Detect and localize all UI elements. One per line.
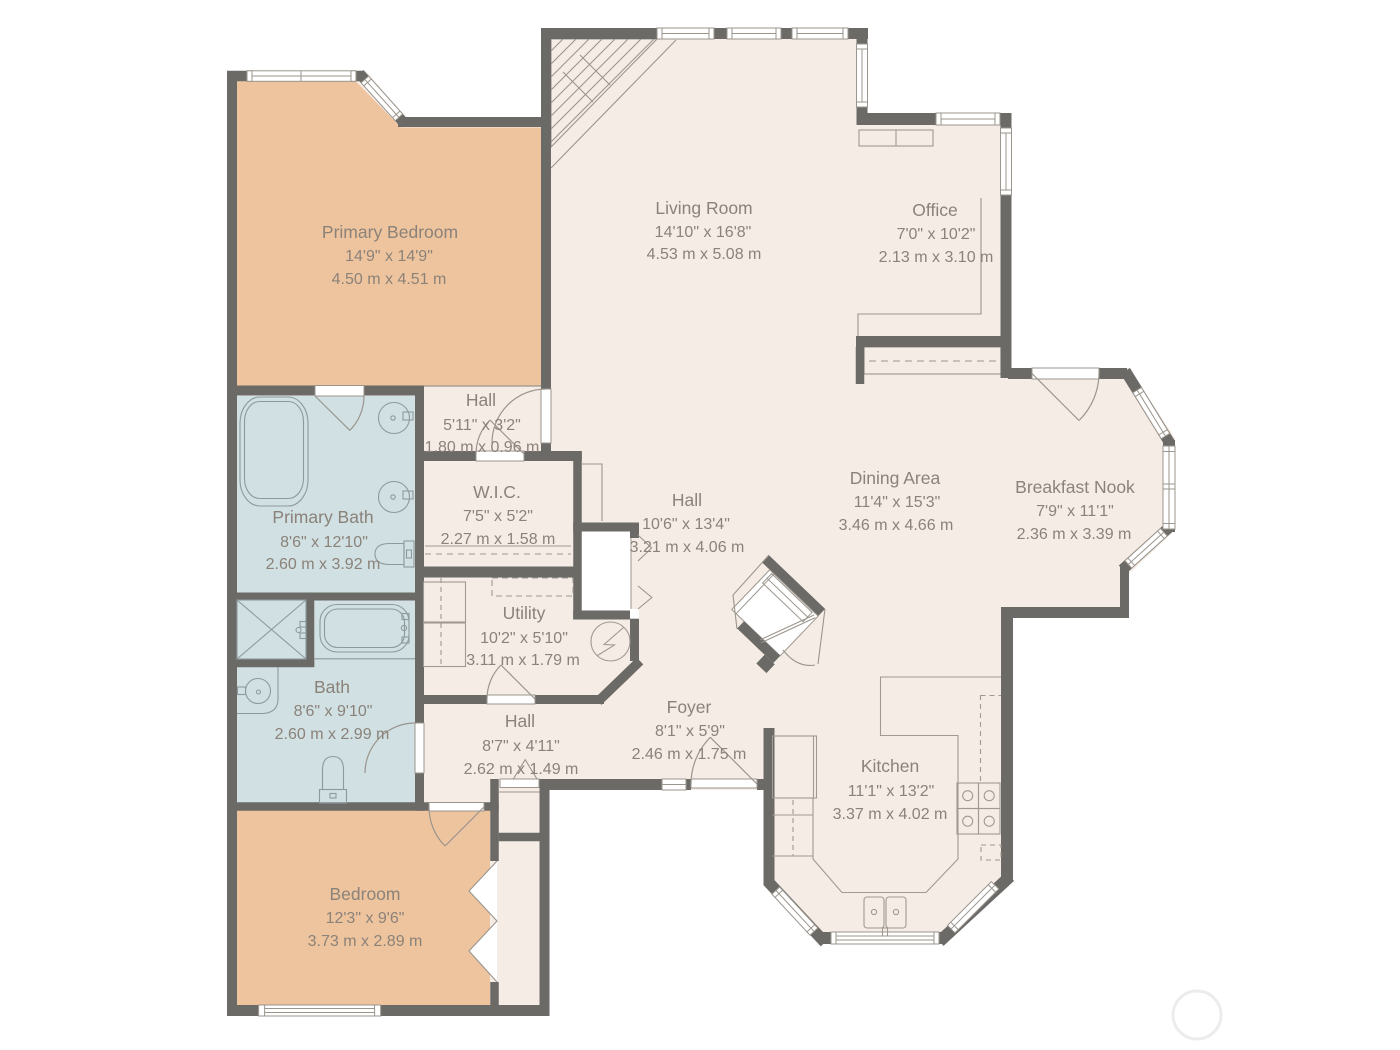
svg-text:2.36 m x 3.39 m: 2.36 m x 3.39 m — [1017, 526, 1132, 543]
svg-text:Bath: Bath — [314, 677, 350, 697]
svg-text:8'6" x 12'10": 8'6" x 12'10" — [280, 534, 368, 551]
svg-text:10'2" x 5'10": 10'2" x 5'10" — [480, 630, 568, 647]
svg-text:Hall: Hall — [505, 711, 535, 731]
svg-text:11'1" x 13'2": 11'1" x 13'2" — [848, 783, 935, 800]
svg-text:2.62 m x 1.49 m: 2.62 m x 1.49 m — [464, 761, 579, 778]
svg-text:8'7" x 4'11": 8'7" x 4'11" — [482, 738, 560, 755]
svg-text:2.13 m x 3.10 m: 2.13 m x 3.10 m — [879, 249, 994, 266]
svg-text:2.60 m x 3.92 m: 2.60 m x 3.92 m — [266, 556, 381, 573]
svg-text:Primary Bedroom: Primary Bedroom — [322, 222, 458, 242]
svg-text:2.60 m x 2.99 m: 2.60 m x 2.99 m — [275, 726, 390, 743]
svg-text:3.46 m x 4.66 m: 3.46 m x 4.66 m — [839, 517, 954, 534]
svg-text:3.37 m x 4.02 m: 3.37 m x 4.02 m — [833, 806, 948, 823]
svg-text:W.I.C.: W.I.C. — [473, 482, 521, 502]
svg-text:Primary Bath: Primary Bath — [272, 507, 373, 527]
svg-text:Kitchen: Kitchen — [861, 756, 919, 776]
svg-text:4.50 m x 4.51 m: 4.50 m x 4.51 m — [332, 271, 447, 288]
svg-text:10'6" x 13'4": 10'6" x 13'4" — [642, 516, 730, 533]
svg-text:12'3" x 9'6": 12'3" x 9'6" — [326, 910, 405, 927]
svg-text:Breakfast Nook: Breakfast Nook — [1015, 477, 1135, 497]
svg-text:Dining Area: Dining Area — [850, 468, 941, 488]
svg-text:14'10" x 16'8": 14'10" x 16'8" — [655, 224, 752, 241]
svg-text:14'9" x 14'9": 14'9" x 14'9" — [345, 248, 433, 265]
svg-text:Foyer: Foyer — [667, 697, 712, 717]
svg-text:4.53 m x 5.08 m: 4.53 m x 5.08 m — [647, 246, 762, 263]
svg-text:Hall: Hall — [672, 490, 702, 510]
svg-text:7'5" x 5'2": 7'5" x 5'2" — [463, 508, 533, 525]
svg-text:Living Room: Living Room — [655, 198, 752, 218]
svg-text:Utility: Utility — [503, 603, 546, 623]
svg-text:3.11 m x 1.79 m: 3.11 m x 1.79 m — [466, 652, 580, 669]
svg-text:5'11" x 3'2": 5'11" x 3'2" — [443, 417, 521, 434]
svg-text:Office: Office — [912, 200, 957, 220]
svg-text:11'4" x 15'3": 11'4" x 15'3" — [854, 494, 941, 511]
svg-text:Bedroom: Bedroom — [329, 884, 400, 904]
svg-text:2.46 m x 1.75 m: 2.46 m x 1.75 m — [632, 746, 747, 763]
svg-text:3.21 m x 4.06 m: 3.21 m x 4.06 m — [630, 539, 745, 556]
svg-text:7'9" x 11'1": 7'9" x 11'1" — [1036, 503, 1114, 520]
svg-text:2.27 m x 1.58 m: 2.27 m x 1.58 m — [441, 531, 556, 548]
svg-text:Hall: Hall — [466, 390, 496, 410]
svg-text:8'6" x 9'10": 8'6" x 9'10" — [294, 703, 373, 720]
svg-text:7'0" x 10'2": 7'0" x 10'2" — [897, 226, 976, 243]
svg-text:1.80 m x 0.96 m: 1.80 m x 0.96 m — [425, 439, 540, 456]
svg-text:3.73 m x 2.89 m: 3.73 m x 2.89 m — [308, 933, 423, 950]
svg-text:8'1" x 5'9": 8'1" x 5'9" — [655, 723, 725, 740]
